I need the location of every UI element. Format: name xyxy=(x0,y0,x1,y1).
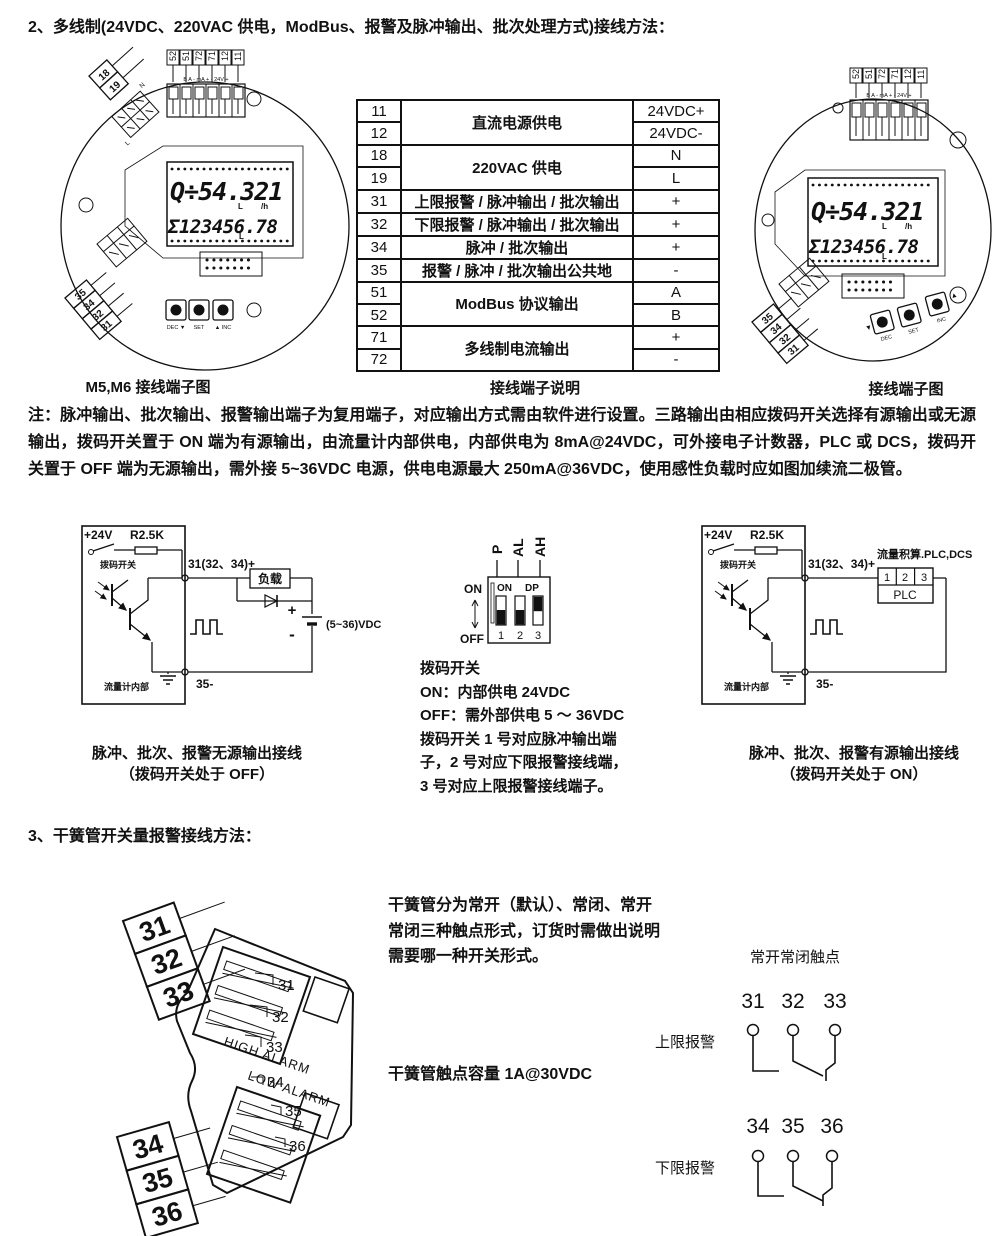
dip-switch-diagram: P AL AH ON DP 1 2 3 ON OFF xyxy=(455,528,645,653)
cell-desc: 报警 / 脉冲 / 批次输出公共地 xyxy=(401,259,633,282)
terminal-51: 51 xyxy=(864,69,874,79)
cell-val: 24VDC- xyxy=(633,122,719,144)
stub-36: 36 xyxy=(289,1138,306,1155)
dip-switch-label: 拨码开关 xyxy=(100,559,136,570)
switch-1-number: 1 xyxy=(498,630,504,642)
active-caption-line1: 脉冲、批次、报警有源输出接线 xyxy=(718,742,990,763)
lcd-display: Q÷54.321 L /h Σ123456.78 L xyxy=(808,178,938,266)
cell-val: + xyxy=(633,326,719,348)
lcd-total-unit: L xyxy=(882,252,887,261)
section3-title: 3、干簧管开关量报警接线方法： xyxy=(28,822,528,846)
box-on-label: ON xyxy=(497,583,512,594)
terminal-12: 12 xyxy=(220,51,230,61)
cell-val: + xyxy=(633,236,719,259)
negative-terminal-label: 35- xyxy=(196,677,213,691)
stub-32: 32 xyxy=(272,1009,289,1026)
contact-33: 33 xyxy=(823,990,846,1013)
ground-icon xyxy=(780,676,796,684)
flowmeter-internal-label: 流量计内部 xyxy=(724,681,769,692)
label-n: N xyxy=(138,81,146,90)
table-row: 34脉冲 / 批次输出+ xyxy=(357,236,719,259)
contact-34: 34 xyxy=(746,1115,770,1138)
cell-val: L xyxy=(633,167,719,189)
terminal-12: 12 xyxy=(903,69,913,79)
dip-desc-line4: 拨码开关 1 号对应脉冲输出端 xyxy=(420,728,617,752)
mounting-pad xyxy=(303,977,349,1023)
up-triangle-icon: ▲ xyxy=(950,292,959,301)
pulse-waveform-icon xyxy=(810,620,843,634)
cell-no: 72 xyxy=(357,349,401,371)
channel-p-label: P xyxy=(489,545,505,554)
low-alarm-terminal-labels: 34 35 36 xyxy=(117,1112,234,1236)
terminal-72: 72 xyxy=(194,51,204,61)
table-row: 32下限报警 / 脉冲输出 / 批次输出+ xyxy=(357,213,719,236)
dip-desc-line1: 拨码开关 xyxy=(420,657,480,681)
channel-al-label: AL xyxy=(510,538,526,557)
dip-desc-line2: ON：内部供电 24VDC xyxy=(420,681,570,705)
reed-desc-line1: 干簧管分为常开（默认）、常闭、常开 xyxy=(388,893,652,919)
terminal-71: 71 xyxy=(890,69,900,79)
strip-label: B A - mA + - 24V + xyxy=(866,93,911,99)
cell-desc: 直流电源供电 xyxy=(401,100,633,145)
supply-label: +24V xyxy=(704,528,732,542)
table-caption: 接线端子说明 xyxy=(455,377,615,398)
dec-button-label: DEC ▼ xyxy=(167,325,186,331)
right-terminal-diagram: 52 51 72 71 12 11 B A - mA + - 24V + Q÷5… xyxy=(745,60,995,390)
table-row: 18220VAC 供电N xyxy=(357,145,719,167)
cell-desc: 下限报警 / 脉冲输出 / 批次输出 xyxy=(401,213,633,236)
table-row: 35报警 / 脉冲 / 批次输出公共地- xyxy=(357,259,719,282)
cell-val: 24VDC+ xyxy=(633,100,719,122)
passive-output-circuit: +24V R2.5K 拨码开关 流量计内部 31(32、34)+ 35- 负载 xyxy=(60,522,400,710)
load-label: 负载 xyxy=(258,571,282,586)
dec-button-label: DEC xyxy=(880,334,893,343)
cell-desc: ModBus 协议输出 xyxy=(401,282,633,327)
reed-desc-line3: 需要哪一种开关形式。 xyxy=(388,944,548,970)
high-alarm-terminal-labels: 31 32 33 xyxy=(123,886,255,1020)
plus-sign: + xyxy=(288,602,297,619)
inc-button-label: INC xyxy=(936,316,947,324)
switch-3-number: 3 xyxy=(535,630,541,642)
on-direction-label: ON xyxy=(464,582,482,596)
terminal-71: 71 xyxy=(207,51,217,61)
low-alarm-contacts: 34 35 36 下限报警 xyxy=(655,1115,844,1206)
terminal-11: 11 xyxy=(916,70,926,79)
battery-voltage-label: (5~36)VDC xyxy=(326,619,381,631)
plc-block: 1 2 3 PLC xyxy=(878,568,933,603)
ground-icon xyxy=(160,676,176,684)
cell-no: 19 xyxy=(357,167,401,189)
switch-2-number: 2 xyxy=(517,630,523,642)
high-alarm-row-label: 上限报警 xyxy=(655,1034,715,1051)
board-connector xyxy=(200,252,262,276)
cell-no: 35 xyxy=(357,259,401,282)
set-button-label: SET xyxy=(908,327,921,336)
cell-desc: 多线制电流输出 xyxy=(401,326,633,371)
output-connector xyxy=(97,218,147,267)
off-direction-label: OFF xyxy=(460,632,484,646)
dip-switch-3[interactable] xyxy=(533,596,543,625)
label-l: L xyxy=(124,139,132,147)
terminal-strip xyxy=(850,100,928,140)
contact-31: 31 xyxy=(741,990,764,1013)
terminal-52: 52 xyxy=(168,51,178,61)
cell-no: 51 xyxy=(357,282,401,304)
terminal-52: 52 xyxy=(851,69,861,79)
set-button-label: SET xyxy=(194,325,205,331)
stub-33: 33 xyxy=(266,1039,283,1056)
lcd-unit-l: L xyxy=(882,222,887,231)
output-terminal-labels: 35 34 32 31 xyxy=(752,292,822,363)
plc-cell-3: 3 xyxy=(921,572,927,584)
contacts-title: 常开常闭触点 xyxy=(750,949,840,966)
lcd-unit-h: /h xyxy=(905,222,912,231)
active-caption-line2: （拨码开关处于 ON） xyxy=(718,763,990,784)
cell-val: - xyxy=(633,349,719,371)
optocoupler-transistors xyxy=(732,578,772,672)
optocoupler-transistors xyxy=(112,578,152,672)
left-terminal-diagram: 52 51 72 71 12 11 B A - mA + - 24V + 18 … xyxy=(55,48,355,388)
table-row: 71多线制电流输出+ xyxy=(357,326,719,348)
resistor-label: R2.5K xyxy=(130,528,164,542)
lcd-total-unit: L xyxy=(239,232,244,241)
cell-no: 12 xyxy=(357,122,401,144)
down-triangle-icon: ▼ xyxy=(865,324,874,333)
dip-switch-2[interactable] xyxy=(515,596,525,625)
flowmeter-internal-label: 流量计内部 xyxy=(104,681,149,692)
cell-no: 11 xyxy=(357,100,401,122)
cell-no: 52 xyxy=(357,304,401,326)
table-row: 51ModBus 协议输出A xyxy=(357,282,719,304)
manual-page: 2、多线制(24VDC、220VAC 供电，ModBus、报警及脉冲输出、批次处… xyxy=(0,0,1000,1236)
board-connector xyxy=(842,274,904,298)
set-button: SET xyxy=(897,303,924,337)
cell-desc: 上限报警 / 脉冲输出 / 批次输出 xyxy=(401,190,633,213)
left-diagram-caption: M5,M6 接线端子图 xyxy=(58,376,238,397)
cell-val: + xyxy=(633,213,719,236)
plc-cell-1: 1 xyxy=(884,572,890,584)
cell-val: B xyxy=(633,304,719,326)
lcd-total-value: Σ123456.78 xyxy=(167,216,277,238)
cell-no: 32 xyxy=(357,213,401,236)
plc-cell-2: 2 xyxy=(902,572,908,584)
reed-switch-board-diagram: 31 32 33 34 35 36 HIGH ALARM LOW ALARM xyxy=(95,885,395,1236)
right-diagram-caption: 接线端子图 xyxy=(846,378,966,399)
cell-val: - xyxy=(633,259,719,282)
negative-terminal-label: 35- xyxy=(816,677,833,691)
active-output-circuit: +24V R2.5K 拨码开关 流量计内部 31(32、34)+ 35- 流量积… xyxy=(682,522,982,710)
lcd-total-value: Σ123456.78 xyxy=(808,236,918,258)
section2-title: 2、多线制(24VDC、220VAC 供电，ModBus、报警及脉冲输出、批次处… xyxy=(28,13,978,37)
cell-no: 31 xyxy=(357,190,401,213)
stub-34: 34 xyxy=(267,1074,284,1091)
dip-desc-line6: 3 号对应上限报警接线端子。 xyxy=(420,775,613,799)
battery-icon: + - (5~36)VDC xyxy=(288,602,382,644)
dec-button: DEC ▼ xyxy=(862,310,897,346)
lcd-display: Q÷54.321 L /h Σ123456.78 L xyxy=(167,162,293,246)
note-paragraph: 注：脉冲输出、批次输出、报警输出端子为复用端子，对应输出方式需由软件进行设置。三… xyxy=(28,402,976,483)
terminal-table: 11直流电源供电24VDC+ 1224VDC- 18220VAC 供电N 19L… xyxy=(356,99,720,372)
contact-forms-diagram: 常开常闭触点 31 32 33 上限报警 34 35 36 下限报警 xyxy=(640,935,1000,1225)
reed-desc-line2: 常闭三种触点形式，订货时需做出说明 xyxy=(388,919,660,945)
terminal-strip xyxy=(167,84,245,117)
contact-32: 32 xyxy=(781,990,804,1013)
terminal-18: 18 xyxy=(97,67,113,83)
cell-desc: 脉冲 / 批次输出 xyxy=(401,236,633,259)
contact-35: 35 xyxy=(781,1115,804,1138)
terminal-11: 11 xyxy=(233,52,243,61)
cell-no: 18 xyxy=(357,145,401,167)
passive-caption-line2: （拨码开关处于 OFF） xyxy=(62,763,332,784)
contact-36: 36 xyxy=(820,1115,843,1138)
cell-desc: 220VAC 供电 xyxy=(401,145,633,190)
positive-terminal-label: 31(32、34)+ xyxy=(188,557,255,571)
dip-switch-1[interactable] xyxy=(496,596,506,625)
lcd-unit-h: /h xyxy=(261,202,268,211)
output-terminal-labels: 35 34 32 31 xyxy=(65,267,136,339)
on-off-arrow xyxy=(472,600,478,628)
table-row: 31上限报警 / 脉冲输出 / 批次输出+ xyxy=(357,190,719,213)
dip-desc-line3: OFF：需外部供电 5 ～ 36VDC xyxy=(420,704,624,728)
cell-val: A xyxy=(633,282,719,304)
table-row: 11直流电源供电24VDC+ xyxy=(357,100,719,122)
positive-terminal-label: 31(32、34)+ xyxy=(808,557,875,571)
strip-label: B A - mA + - 24V + xyxy=(183,77,228,83)
dip-desc-line5: 子，2 号对应下限报警接线端， xyxy=(420,751,628,775)
dip-switch-label: 拨码开关 xyxy=(720,559,756,570)
reed-capacity: 干簧管触点容量 1A@30VDC xyxy=(388,1062,592,1088)
panel-buttons: DEC ▼ SET ▲ INC xyxy=(166,300,233,331)
cell-val: + xyxy=(633,190,719,213)
inc-button-label: ▲ INC xyxy=(215,325,231,331)
resistor-label: R2.5K xyxy=(750,528,784,542)
cell-no: 34 xyxy=(357,236,401,259)
minus-sign: - xyxy=(289,625,295,644)
supply-label: +24V xyxy=(84,528,112,542)
stub-31: 31 xyxy=(278,977,295,994)
plc-title: 流量积算.PLC,DCS xyxy=(877,547,972,561)
stub-35: 35 xyxy=(285,1103,302,1120)
channel-ah-label: AH xyxy=(532,537,548,557)
terminal-51: 51 xyxy=(181,51,191,61)
passive-caption-line1: 脉冲、批次、报警无源输出接线 xyxy=(62,742,332,763)
box-dp-label: DP xyxy=(525,583,539,594)
cell-val: N xyxy=(633,145,719,167)
plc-label: PLC xyxy=(893,588,917,602)
cell-no: 71 xyxy=(357,326,401,348)
terminal-72: 72 xyxy=(877,69,887,79)
lcd-unit-l: L xyxy=(238,202,243,211)
high-alarm-contacts: 31 32 33 上限报警 xyxy=(655,990,847,1081)
low-alarm-row-label: 下限报警 xyxy=(655,1160,715,1177)
pulse-waveform-icon xyxy=(190,620,223,634)
terminal-19: 19 xyxy=(108,79,124,95)
